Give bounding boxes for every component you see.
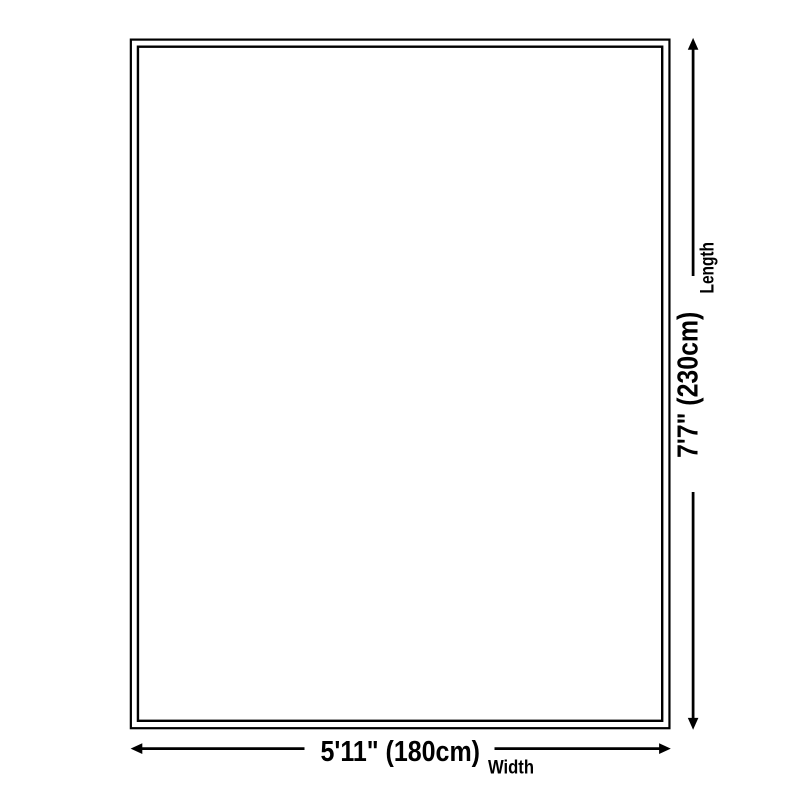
svg-text:7'7" (230cm): 7'7" (230cm) (673, 312, 705, 458)
svg-text:Length: Length (697, 242, 719, 294)
svg-text:5'11" (180cm): 5'11" (180cm) (321, 736, 481, 768)
svg-text:Width: Width (488, 757, 534, 779)
